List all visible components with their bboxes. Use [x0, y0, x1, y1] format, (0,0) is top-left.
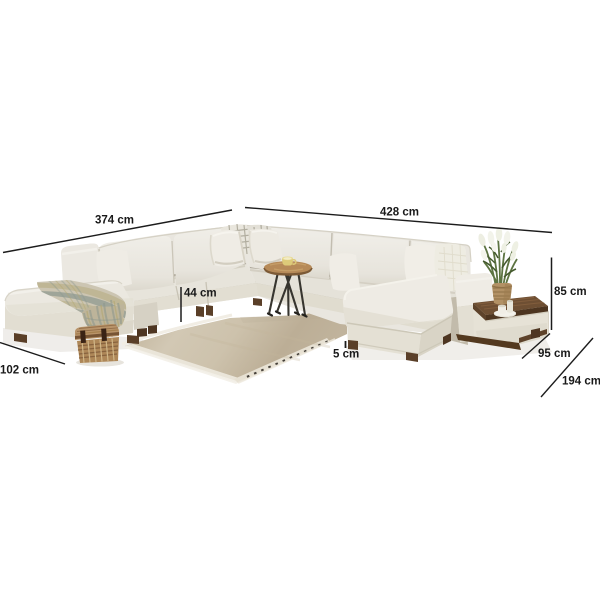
- svg-text:102 cm: 102 cm: [0, 365, 39, 377]
- svg-text:194 cm: 194 cm: [562, 376, 600, 388]
- svg-text:85 cm: 85 cm: [554, 286, 587, 298]
- svg-text:95 cm: 95 cm: [538, 348, 571, 360]
- svg-text:428 cm: 428 cm: [380, 207, 419, 219]
- svg-text:5 cm: 5 cm: [333, 349, 359, 361]
- svg-text:44 cm: 44 cm: [184, 288, 217, 300]
- svg-text:374 cm: 374 cm: [95, 215, 134, 227]
